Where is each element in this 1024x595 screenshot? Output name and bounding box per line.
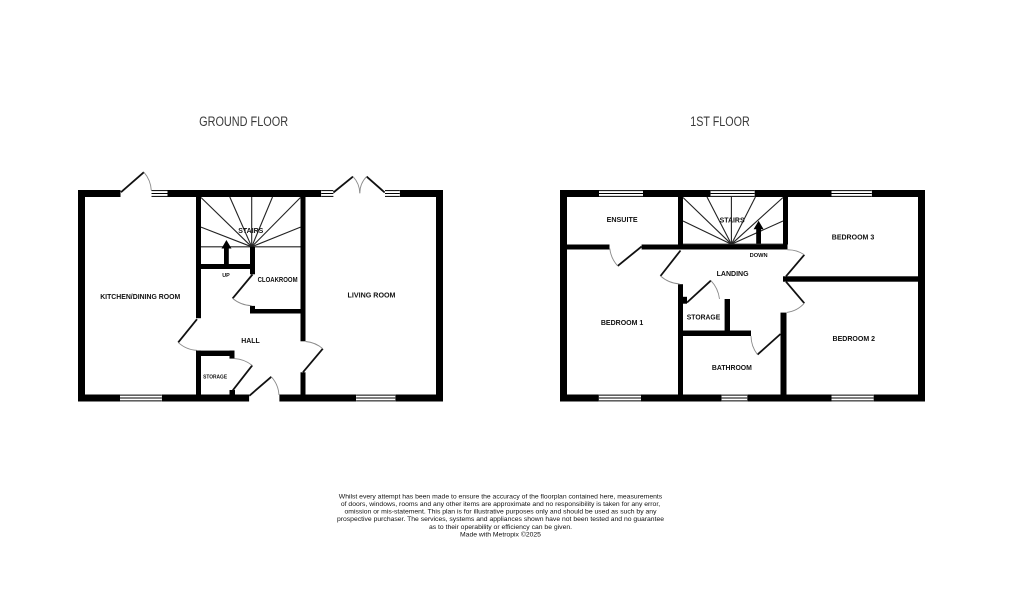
- svg-text:STORAGE: STORAGE: [203, 374, 227, 380]
- svg-text:prospective purchaser. The ser: prospective purchaser. The services, sys…: [337, 516, 664, 523]
- svg-text:ENSUITE: ENSUITE: [607, 217, 638, 224]
- svg-text:BEDROOM 1: BEDROOM 1: [601, 320, 644, 327]
- svg-text:STAIRS: STAIRS: [720, 217, 745, 224]
- svg-text:STORAGE: STORAGE: [687, 314, 721, 321]
- svg-text:1ST FLOOR: 1ST FLOOR: [690, 114, 750, 129]
- svg-text:LIVING ROOM: LIVING ROOM: [348, 292, 396, 299]
- svg-text:CLOAKROOM: CLOAKROOM: [258, 277, 298, 284]
- svg-text:DOWN: DOWN: [750, 253, 768, 259]
- svg-text:LANDING: LANDING: [717, 271, 750, 278]
- svg-text:Made with Metropix ©2025: Made with Metropix ©2025: [460, 531, 541, 539]
- svg-text:HALL: HALL: [241, 338, 260, 345]
- svg-text:UP: UP: [222, 273, 230, 279]
- svg-text:omission or mis-statement. Thi: omission or mis-statement. This plan is …: [345, 509, 658, 516]
- svg-text:KITCHEN/DINING ROOM: KITCHEN/DINING ROOM: [100, 294, 180, 301]
- svg-text:BEDROOM 2: BEDROOM 2: [833, 336, 876, 343]
- svg-text:GROUND FLOOR: GROUND FLOOR: [199, 114, 288, 129]
- svg-text:Whilst every attempt has been: Whilst every attempt has been made to en…: [339, 493, 663, 500]
- svg-text:BATHROOM: BATHROOM: [712, 365, 752, 372]
- svg-text:as to their operability or eff: as to their operability or efficiency ca…: [429, 524, 572, 531]
- svg-text:of doors, windows, rooms and a: of doors, windows, rooms and any other i…: [341, 501, 660, 508]
- svg-text:STAIRS: STAIRS: [238, 228, 263, 235]
- svg-text:BEDROOM 3: BEDROOM 3: [832, 234, 875, 241]
